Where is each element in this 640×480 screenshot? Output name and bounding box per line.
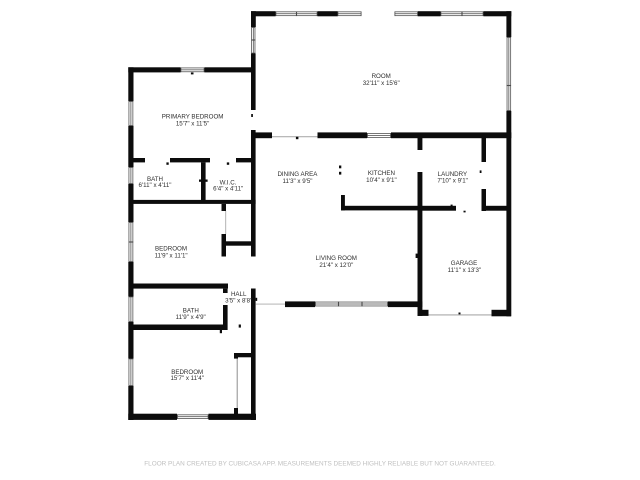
svg-text:11'9" x 4'9": 11'9" x 4'9" xyxy=(176,314,206,321)
svg-text:15'7" x 11'4": 15'7" x 11'4" xyxy=(170,375,203,382)
svg-text:DINING AREA: DINING AREA xyxy=(277,171,318,178)
svg-text:11'3" x 9'5": 11'3" x 9'5" xyxy=(282,178,312,185)
svg-text:11'1" x 13'3": 11'1" x 13'3" xyxy=(448,267,481,274)
svg-text:11'9" x 11'1": 11'9" x 11'1" xyxy=(155,252,188,259)
svg-text:FLOOR PLAN CREATED BY CUBICASA: FLOOR PLAN CREATED BY CUBICASA APP. MEAS… xyxy=(144,461,496,468)
svg-text:7'10" x 9'1": 7'10" x 9'1" xyxy=(437,178,468,185)
svg-text:15'7" x 11'5": 15'7" x 11'5" xyxy=(176,120,209,127)
svg-text:LIVING ROOM: LIVING ROOM xyxy=(316,255,357,262)
svg-text:32'11" x 15'6": 32'11" x 15'6" xyxy=(363,80,400,87)
svg-text:KITCHEN: KITCHEN xyxy=(368,170,395,177)
svg-text:3'5" x 8'8": 3'5" x 8'8" xyxy=(225,297,252,304)
svg-text:6'11" x 4'11": 6'11" x 4'11" xyxy=(138,182,171,189)
svg-text:21'4" x 12'0": 21'4" x 12'0" xyxy=(319,262,353,269)
svg-text:6'4" x 4'11": 6'4" x 4'11" xyxy=(213,186,243,193)
svg-text:10'4" x 9'1": 10'4" x 9'1" xyxy=(366,177,397,184)
svg-text:GARAGE: GARAGE xyxy=(451,260,477,267)
